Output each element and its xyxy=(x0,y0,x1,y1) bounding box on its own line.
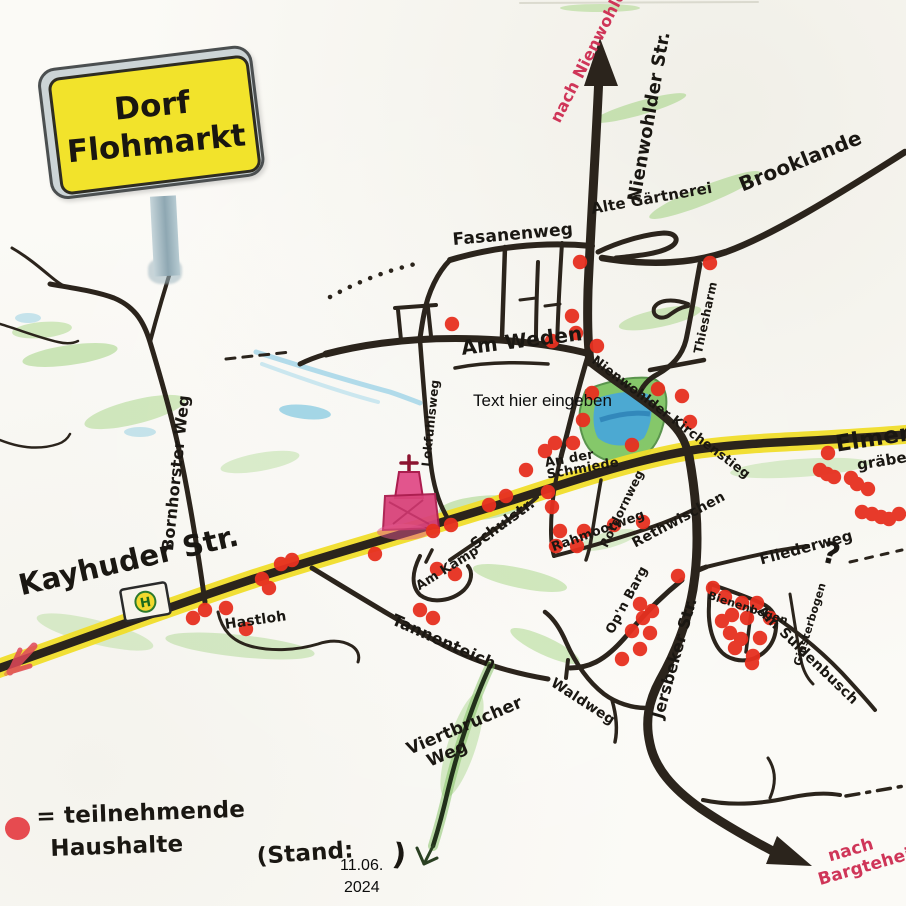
sign-title-line2: Flohmarkt xyxy=(66,117,248,170)
legend-dot xyxy=(5,817,30,840)
legend-stand-year: 2024 xyxy=(344,880,380,896)
village-sign: Dorf Flohmarkt xyxy=(36,44,266,201)
legend-stand-date: 11.06. xyxy=(340,858,383,874)
legend-line2: Haushalte xyxy=(50,833,184,861)
village-sign-panel: Dorf Flohmarkt xyxy=(47,54,262,196)
dotted-footpath xyxy=(330,263,420,297)
village-flea-market-map: H Dorf Flohmarkt nach Nienwohld Nienwohl… xyxy=(0,0,906,906)
bus-stop-icon: H xyxy=(120,582,171,622)
arrowhead-southeast xyxy=(766,836,812,866)
sign-title-line1: Dorf xyxy=(113,85,192,128)
road-alte-gaertnerei xyxy=(598,233,676,258)
sign-post xyxy=(150,195,180,276)
text-input-artifact[interactable]: Text hier eingeben xyxy=(473,392,612,409)
